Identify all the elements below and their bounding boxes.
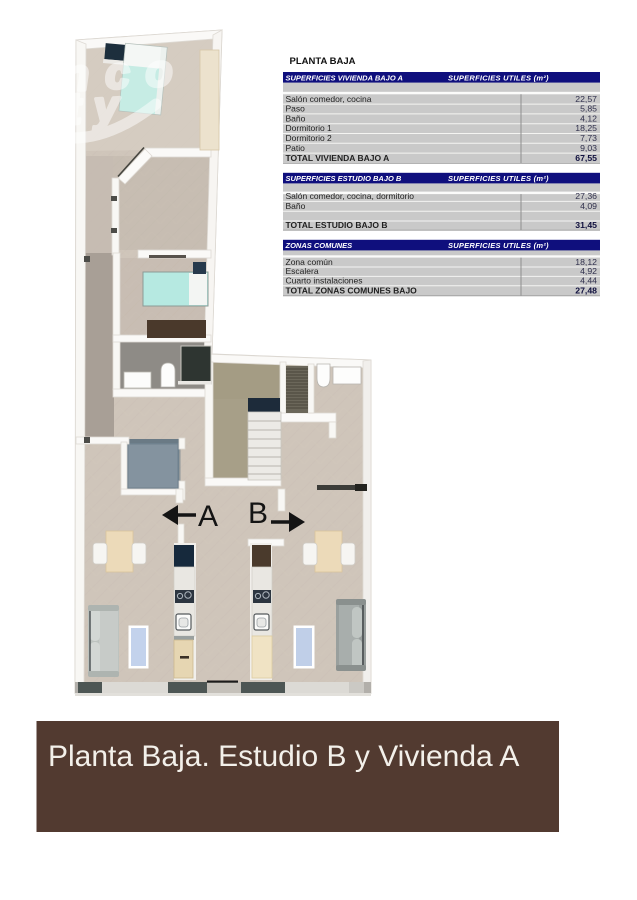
- svg-text:22,57: 22,57: [575, 94, 597, 104]
- svg-text:TOTAL ESTUDIO BAJO B: TOTAL ESTUDIO BAJO B: [286, 220, 388, 230]
- svg-text:27,48: 27,48: [575, 286, 597, 296]
- svg-text:Patio: Patio: [286, 143, 306, 153]
- svg-text:B: B: [248, 497, 268, 530]
- svg-text:31,45: 31,45: [575, 220, 597, 230]
- svg-text:SUPERFICIES UTILES (m²): SUPERFICIES UTILES (m²): [448, 73, 549, 82]
- svg-text:9,03: 9,03: [580, 143, 597, 153]
- svg-text:Dormitorio 1: Dormitorio 1: [286, 123, 333, 133]
- svg-text:Planta Baja. Estudio B y Vivie: Planta Baja. Estudio B y Vivienda A: [48, 740, 519, 773]
- svg-text:SUPERFICIES ESTUDIO BAJO B: SUPERFICIES ESTUDIO BAJO B: [286, 174, 402, 183]
- svg-text:SUPERFICIES UTILES (m²): SUPERFICIES UTILES (m²): [448, 174, 549, 183]
- svg-text:4,44: 4,44: [580, 276, 597, 286]
- svg-text:Salón comedor, cocina, dormito: Salón comedor, cocina, dormitorio: [286, 191, 415, 201]
- svg-text:A: A: [198, 500, 218, 533]
- svg-text:SUPERFICIES UTILES (m²): SUPERFICIES UTILES (m²): [448, 241, 549, 250]
- svg-text:TOTAL VIVIENDA BAJO A: TOTAL VIVIENDA BAJO A: [286, 153, 390, 163]
- svg-text:67,55: 67,55: [575, 153, 597, 163]
- svg-text:TOTAL ZONAS COMUNES BAJO: TOTAL ZONAS COMUNES BAJO: [286, 286, 418, 296]
- svg-text:7,73: 7,73: [580, 133, 597, 143]
- svg-text:ZONAS COMUNES: ZONAS COMUNES: [285, 241, 353, 250]
- svg-text:4,09: 4,09: [580, 201, 597, 211]
- svg-text:5,85: 5,85: [580, 104, 597, 114]
- svg-text:18,25: 18,25: [575, 123, 597, 133]
- svg-text:Dormitorio 2: Dormitorio 2: [286, 133, 333, 143]
- svg-text:27,36: 27,36: [575, 191, 597, 201]
- svg-text:SUPERFICIES VIVIENDA BAJO A: SUPERFICIES VIVIENDA BAJO A: [286, 73, 403, 82]
- svg-text:Baño: Baño: [286, 201, 306, 211]
- svg-text:Baño: Baño: [286, 113, 306, 123]
- svg-text:Salón comedor, cocina: Salón comedor, cocina: [286, 94, 372, 104]
- svg-text:4,12: 4,12: [580, 113, 597, 123]
- svg-text:Paso: Paso: [286, 104, 306, 114]
- svg-text:Cuarto instalaciones: Cuarto instalaciones: [286, 276, 363, 286]
- svg-text:PLANTA BAJA: PLANTA BAJA: [290, 56, 356, 67]
